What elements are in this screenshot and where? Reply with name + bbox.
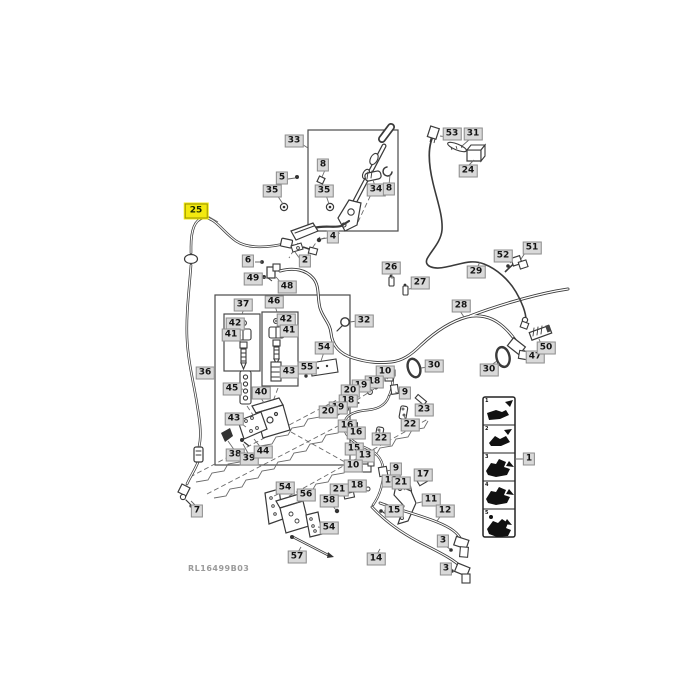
part-label-35[interactable]: 35	[263, 185, 282, 198]
part-label-35[interactable]: 35	[315, 185, 334, 198]
part-label-22[interactable]: 22	[372, 433, 391, 446]
part-label-8[interactable]: 8	[383, 183, 395, 196]
cable-grommet	[185, 255, 198, 264]
part-label-37[interactable]: 37	[234, 299, 253, 312]
legend-pictograms	[486, 400, 514, 537]
legend-cell-number: 1	[485, 399, 488, 404]
part-label-56[interactable]: 56	[297, 489, 316, 502]
part-label-1[interactable]: 1	[523, 453, 535, 466]
part-label-49[interactable]: 49	[244, 273, 263, 286]
part-label-53[interactable]: 53	[443, 128, 462, 141]
part-label-30[interactable]: 30	[480, 364, 499, 377]
part-label-15[interactable]: 15	[385, 505, 404, 518]
clamp-32	[341, 318, 349, 326]
part-label-26[interactable]: 26	[382, 262, 401, 275]
part-label-33[interactable]: 33	[285, 135, 304, 148]
part-label-17[interactable]: 17	[414, 469, 433, 482]
part-label-31[interactable]: 31	[464, 128, 483, 141]
part-label-54[interactable]: 54	[315, 342, 334, 355]
part-label-48[interactable]: 48	[278, 281, 297, 294]
part-label-58[interactable]: 58	[320, 495, 339, 508]
part-label-40[interactable]: 40	[252, 387, 271, 400]
relay-24	[467, 150, 481, 161]
part-label-50[interactable]: 50	[537, 342, 556, 355]
part-label-51[interactable]: 51	[523, 242, 542, 255]
part-label-54[interactable]: 54	[320, 522, 339, 535]
part-label-43[interactable]: 43	[225, 413, 244, 426]
part-label-16[interactable]: 16	[347, 427, 366, 440]
part-label-23[interactable]: 23	[415, 404, 434, 417]
wiring-harness-29	[426, 126, 528, 329]
part-label-55[interactable]: 55	[298, 362, 317, 375]
o-ring-30	[405, 357, 422, 379]
part-label-22[interactable]: 22	[401, 419, 420, 432]
connector-53	[427, 126, 439, 139]
part-label-46[interactable]: 46	[265, 296, 284, 309]
legend-cell-number: 5	[485, 511, 488, 516]
parts-diagram-page: 3358353534842553312462494826272951522832…	[0, 0, 700, 700]
figure-code: RL16499B03	[188, 564, 249, 574]
part-label-2[interactable]: 2	[299, 255, 311, 268]
legend-cell-number: 2	[485, 427, 488, 432]
part-label-4[interactable]: 4	[327, 231, 339, 244]
part-label-3[interactable]: 3	[437, 535, 449, 548]
part-label-30[interactable]: 30	[425, 360, 444, 373]
part-label-18[interactable]: 18	[348, 480, 367, 493]
part-label-7[interactable]: 7	[191, 505, 203, 518]
part-label-9[interactable]: 9	[399, 387, 411, 400]
part-label-27[interactable]: 27	[411, 277, 430, 290]
part-label-10[interactable]: 10	[344, 460, 363, 473]
part-label-21[interactable]: 21	[392, 477, 411, 490]
part-label-57[interactable]: 57	[288, 551, 307, 564]
clip-8	[383, 167, 392, 176]
part-label-52[interactable]: 52	[494, 250, 513, 263]
part-label-45[interactable]: 45	[223, 383, 242, 396]
legend-cell-number: 4	[485, 483, 488, 488]
part-label-3[interactable]: 3	[440, 563, 452, 576]
part-label-12[interactable]: 12	[436, 505, 455, 518]
part-label-24[interactable]: 24	[459, 165, 478, 178]
part-label-54[interactable]: 54	[276, 482, 295, 495]
part-label-29[interactable]: 29	[467, 266, 486, 279]
part-label-44[interactable]: 44	[254, 446, 273, 459]
tie-strap-31	[447, 140, 468, 153]
part-label-28[interactable]: 28	[452, 300, 471, 313]
part-label-36[interactable]: 36	[196, 367, 215, 380]
part-label-14[interactable]: 14	[367, 553, 386, 566]
part-label-5[interactable]: 5	[276, 172, 288, 185]
part-label-25[interactable]: 25	[185, 204, 208, 219]
part-label-41[interactable]: 41	[280, 325, 299, 338]
part-label-6[interactable]: 6	[242, 255, 254, 268]
part-label-41[interactable]: 41	[222, 329, 241, 342]
part-label-43[interactable]: 43	[280, 366, 299, 379]
diagram-line-art	[0, 0, 700, 700]
legend-cell-number: 3	[485, 455, 488, 460]
knob-38	[221, 428, 233, 442]
part-label-8[interactable]: 8	[317, 159, 329, 172]
part-label-20[interactable]: 20	[319, 406, 338, 419]
part-label-32[interactable]: 32	[355, 315, 374, 328]
